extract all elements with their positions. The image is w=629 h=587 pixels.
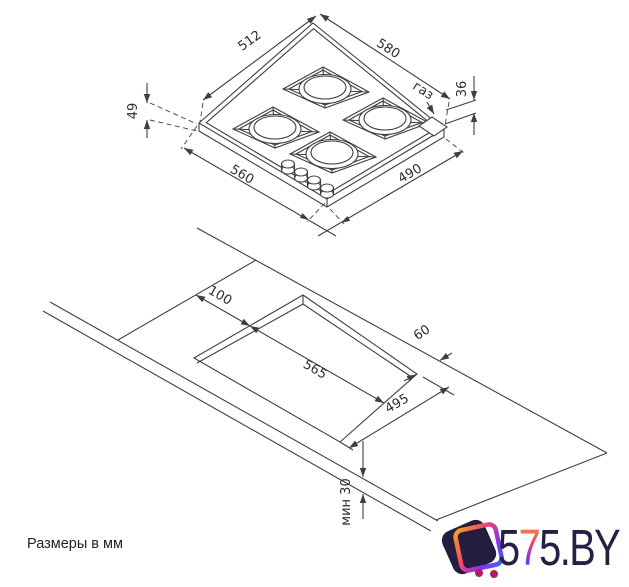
control-knob [321, 184, 334, 198]
dim-100-label: 100 [205, 283, 234, 308]
units-note: Размеры в мм [27, 536, 123, 552]
dim-60-label: 60 [411, 322, 433, 344]
store-name: 575.BY [498, 518, 619, 578]
dim-560-label: 560 [227, 162, 256, 187]
technical-drawing: 512 580 газ 36 49 [0, 0, 629, 587]
gas-label: газ [410, 79, 436, 103]
control-knob [308, 176, 321, 190]
burner [233, 107, 319, 148]
dim-min-30: мин 30 [339, 441, 363, 526]
hob-isometric-view: 512 580 газ 36 49 [126, 14, 476, 236]
store-name-part: 5.BY [539, 519, 619, 576]
store-watermark: 575.BY [438, 513, 629, 585]
worktop-outline [43, 228, 607, 531]
dim-49-label: 49 [126, 103, 141, 120]
dim-565-label: 565 [300, 357, 329, 382]
store-name-part: 5 [498, 519, 519, 576]
burner [283, 67, 369, 108]
spec-sheet: 512 580 газ 36 49 [0, 0, 629, 587]
worktop-cutout-view: 100 565 60 495 мин 30 [43, 228, 607, 531]
dim-49: 49 [126, 83, 197, 138]
dim-60: 60 [404, 322, 452, 381]
burner [343, 98, 429, 139]
control-knob [282, 160, 295, 174]
dim-512: 512 [200, 16, 316, 122]
dim-min-30-label: мин 30 [339, 478, 354, 525]
gas-callout: газ [410, 79, 436, 114]
dim-512-label: 512 [235, 28, 264, 55]
dim-36-label: 36 [455, 81, 470, 98]
dim-36: 36 [445, 76, 476, 135]
store-name-gradient-digit: 7 [519, 519, 540, 576]
dim-490-label: 490 [396, 161, 425, 187]
control-knob [295, 168, 308, 182]
